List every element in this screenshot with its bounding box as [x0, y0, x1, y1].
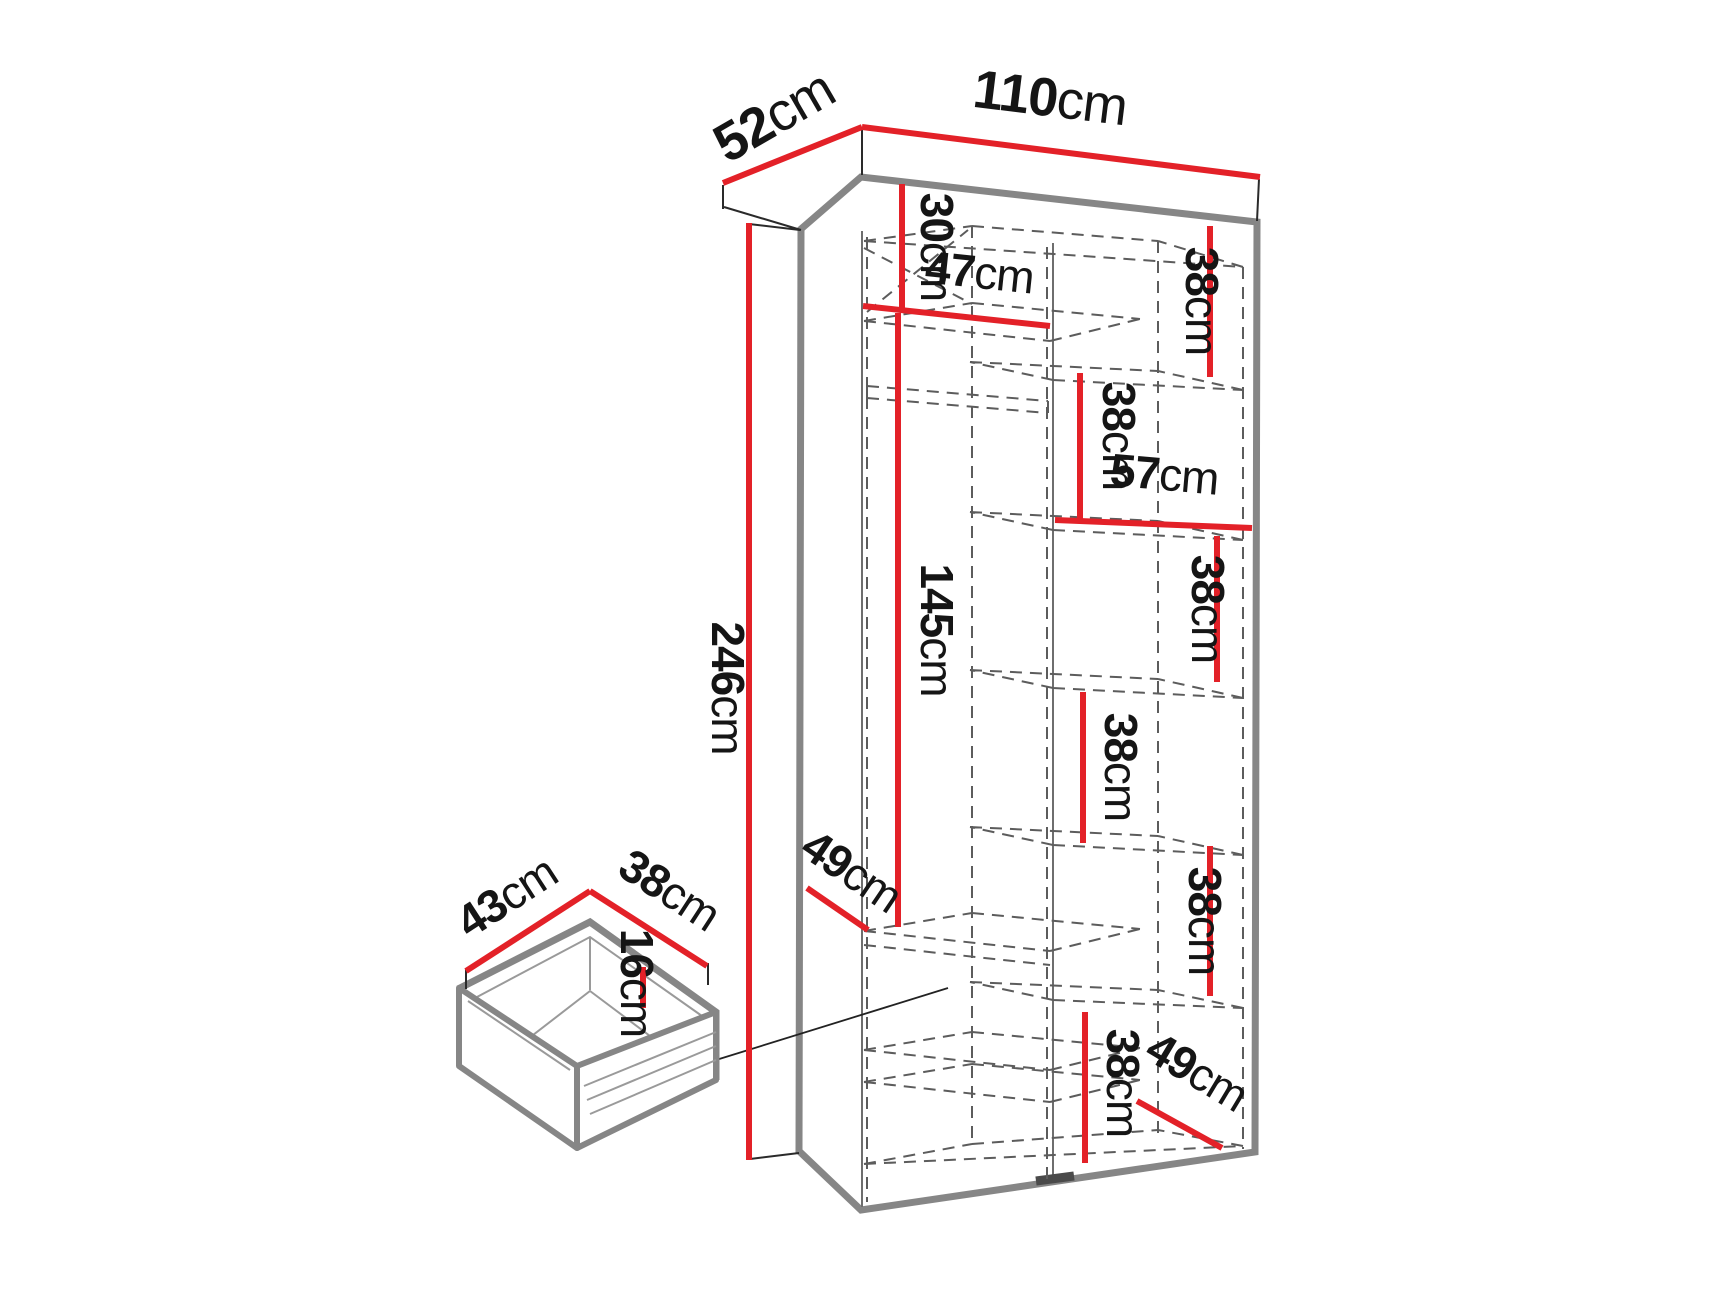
label-drawer-38: 38cm	[610, 838, 729, 941]
label-width-110: 110cm	[970, 59, 1130, 137]
cabinet-inner-edges	[862, 231, 1053, 1207]
label-hanging-145: 145cm	[911, 563, 963, 696]
label-depth-52: 52cm	[704, 58, 845, 174]
label-right-38-5: 38cm	[1179, 867, 1231, 976]
label-right-38-1: 38cm	[1176, 247, 1228, 356]
diagram-canvas: 52cm 110cm 246cm 30cm 47cm 145cm 38cm 38…	[0, 0, 1726, 1295]
wardrobe-dimension-diagram: 52cm 110cm 246cm 30cm 47cm 145cm 38cm 38…	[0, 0, 1726, 1295]
label-right-38-3: 38cm	[1182, 555, 1234, 664]
label-right-38-4: 38cm	[1095, 713, 1147, 822]
right-shelf-5	[970, 982, 1243, 1008]
drawer-front-panel	[459, 988, 577, 1148]
hanging-rail	[867, 386, 1048, 413]
left-middle-shelf	[864, 913, 1140, 965]
partition-base	[1036, 1176, 1074, 1181]
label-right-38-6: 38cm	[1097, 1029, 1149, 1138]
label-depth-49-lower: 49cm	[1137, 1021, 1257, 1121]
label-right-shelf-57: 57cm	[1108, 443, 1221, 504]
dim-line-width-110	[862, 127, 1260, 177]
label-drawer-43: 43cm	[447, 845, 566, 948]
drawer-detail	[459, 922, 948, 1148]
right-shelf-3	[970, 670, 1243, 698]
label-height-246: 246cm	[702, 621, 754, 754]
right-shelf-4	[970, 827, 1243, 855]
dim-line-right-shelf-57	[1055, 520, 1252, 528]
label-depth-49-upper: 49cm	[792, 819, 911, 923]
dimension-labels: 52cm 110cm 246cm 30cm 47cm 145cm 38cm 38…	[447, 58, 1258, 1137]
label-drawer-16: 16cm	[611, 929, 663, 1038]
